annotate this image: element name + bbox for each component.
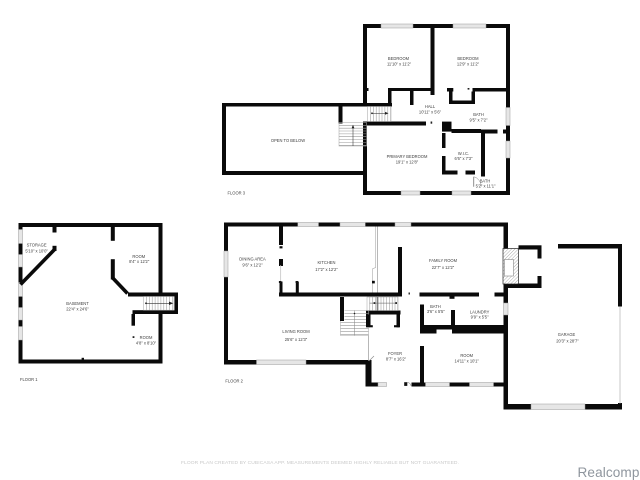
svg-text:5'2" x 11'1": 5'2" x 11'1"	[476, 183, 496, 188]
svg-text:8'4" x 12'2": 8'4" x 12'2"	[129, 259, 150, 264]
svg-text:19'1" x 12'8": 19'1" x 12'8"	[396, 159, 419, 164]
svg-text:9'5" x 7'2": 9'5" x 7'2"	[470, 117, 488, 122]
svg-text:11'10" x 11'2": 11'10" x 11'2"	[387, 62, 412, 67]
svg-text:BATH: BATH	[473, 112, 484, 117]
svg-text:5'10" x 10'0": 5'10" x 10'0"	[25, 248, 48, 253]
svg-text:14'11" x 10'1": 14'11" x 10'1"	[454, 358, 479, 363]
svg-text:9'6" x 12'2": 9'6" x 12'2"	[242, 262, 263, 267]
svg-text:Realcomp: Realcomp	[578, 465, 640, 480]
svg-text:FLOOR 1: FLOOR 1	[20, 377, 38, 382]
svg-text:DINING AREA: DINING AREA	[239, 257, 266, 262]
svg-text:BEDROOM: BEDROOM	[457, 56, 479, 61]
svg-text:OPEN TO BELOW: OPEN TO BELOW	[271, 138, 305, 143]
svg-text:9'9" x 5'5": 9'9" x 5'5"	[471, 315, 489, 320]
svg-text:KITCHEN: KITCHEN	[318, 260, 336, 265]
svg-text:BASEMENT: BASEMENT	[66, 301, 89, 306]
svg-text:HALL: HALL	[425, 104, 436, 109]
svg-text:STORAGE: STORAGE	[27, 243, 47, 248]
svg-text:6'6" x 7'3": 6'6" x 7'3"	[455, 156, 473, 161]
svg-text:ROOM: ROOM	[140, 335, 153, 340]
svg-text:10'11" x 5'6": 10'11" x 5'6"	[419, 109, 442, 114]
svg-text:LIVING ROOM: LIVING ROOM	[282, 329, 310, 334]
svg-text:12'9" x 11'2": 12'9" x 11'2"	[457, 62, 480, 67]
svg-text:W.I.C.: W.I.C.	[458, 151, 469, 156]
svg-text:22'4" x 24'6": 22'4" x 24'6"	[66, 307, 89, 312]
svg-text:17'2" x 12'2": 17'2" x 12'2"	[315, 267, 338, 272]
svg-text:25'6" x 12'3": 25'6" x 12'3"	[285, 337, 308, 342]
svg-text:FAMILY ROOM: FAMILY ROOM	[429, 258, 458, 263]
svg-text:PRIMARY BEDROOM: PRIMARY BEDROOM	[387, 154, 428, 159]
svg-text:BEDROOM: BEDROOM	[388, 56, 410, 61]
svg-text:FOYER: FOYER	[388, 351, 402, 356]
svg-text:4'8" x 8'10": 4'8" x 8'10"	[136, 341, 157, 346]
svg-text:GARAGE: GARAGE	[558, 332, 576, 337]
svg-text:3'6" x 5'5": 3'6" x 5'5"	[427, 309, 445, 314]
svg-text:22'7" x 12'2": 22'7" x 12'2"	[432, 265, 455, 270]
svg-text:8'7" x 16'2": 8'7" x 16'2"	[386, 356, 407, 361]
svg-text:BATH: BATH	[430, 304, 441, 309]
svg-text:FLOOR 2: FLOOR 2	[225, 379, 243, 384]
svg-text:20'3" x 28'7": 20'3" x 28'7"	[556, 339, 579, 344]
svg-text:FLOOR 3: FLOOR 3	[228, 190, 246, 195]
svg-text:FLOOR PLAN CREATED BY CUBICASA: FLOOR PLAN CREATED BY CUBICASA APP. MEAS…	[181, 460, 459, 466]
